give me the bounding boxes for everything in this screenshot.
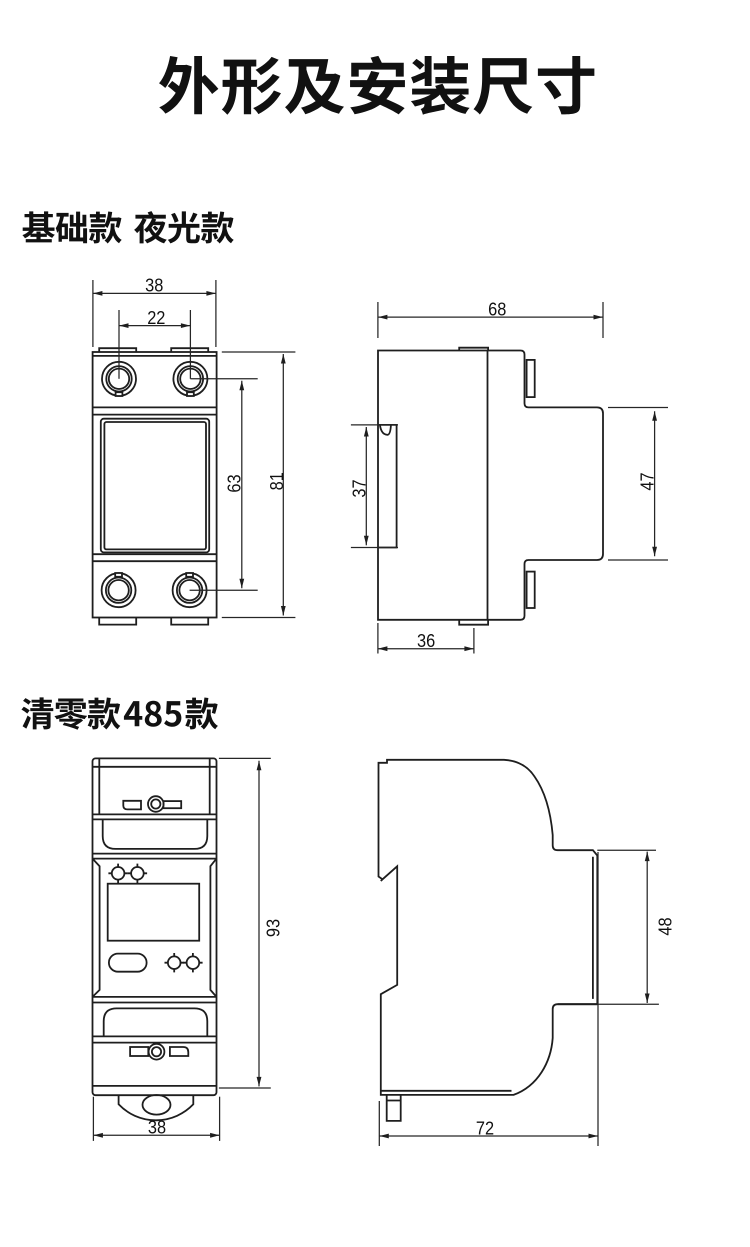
svg-text:72: 72	[476, 1118, 494, 1138]
svg-text:37: 37	[350, 479, 370, 497]
svg-text:36: 36	[417, 631, 435, 651]
svg-text:48: 48	[656, 917, 676, 935]
svg-text:47: 47	[637, 472, 657, 490]
svg-text:81: 81	[267, 472, 287, 490]
svg-text:38: 38	[145, 276, 163, 296]
svg-text:68: 68	[488, 300, 506, 320]
svg-text:63: 63	[225, 474, 245, 492]
svg-text:22: 22	[147, 308, 165, 328]
svg-text:93: 93	[264, 919, 284, 937]
svg-text:38: 38	[148, 1118, 166, 1138]
